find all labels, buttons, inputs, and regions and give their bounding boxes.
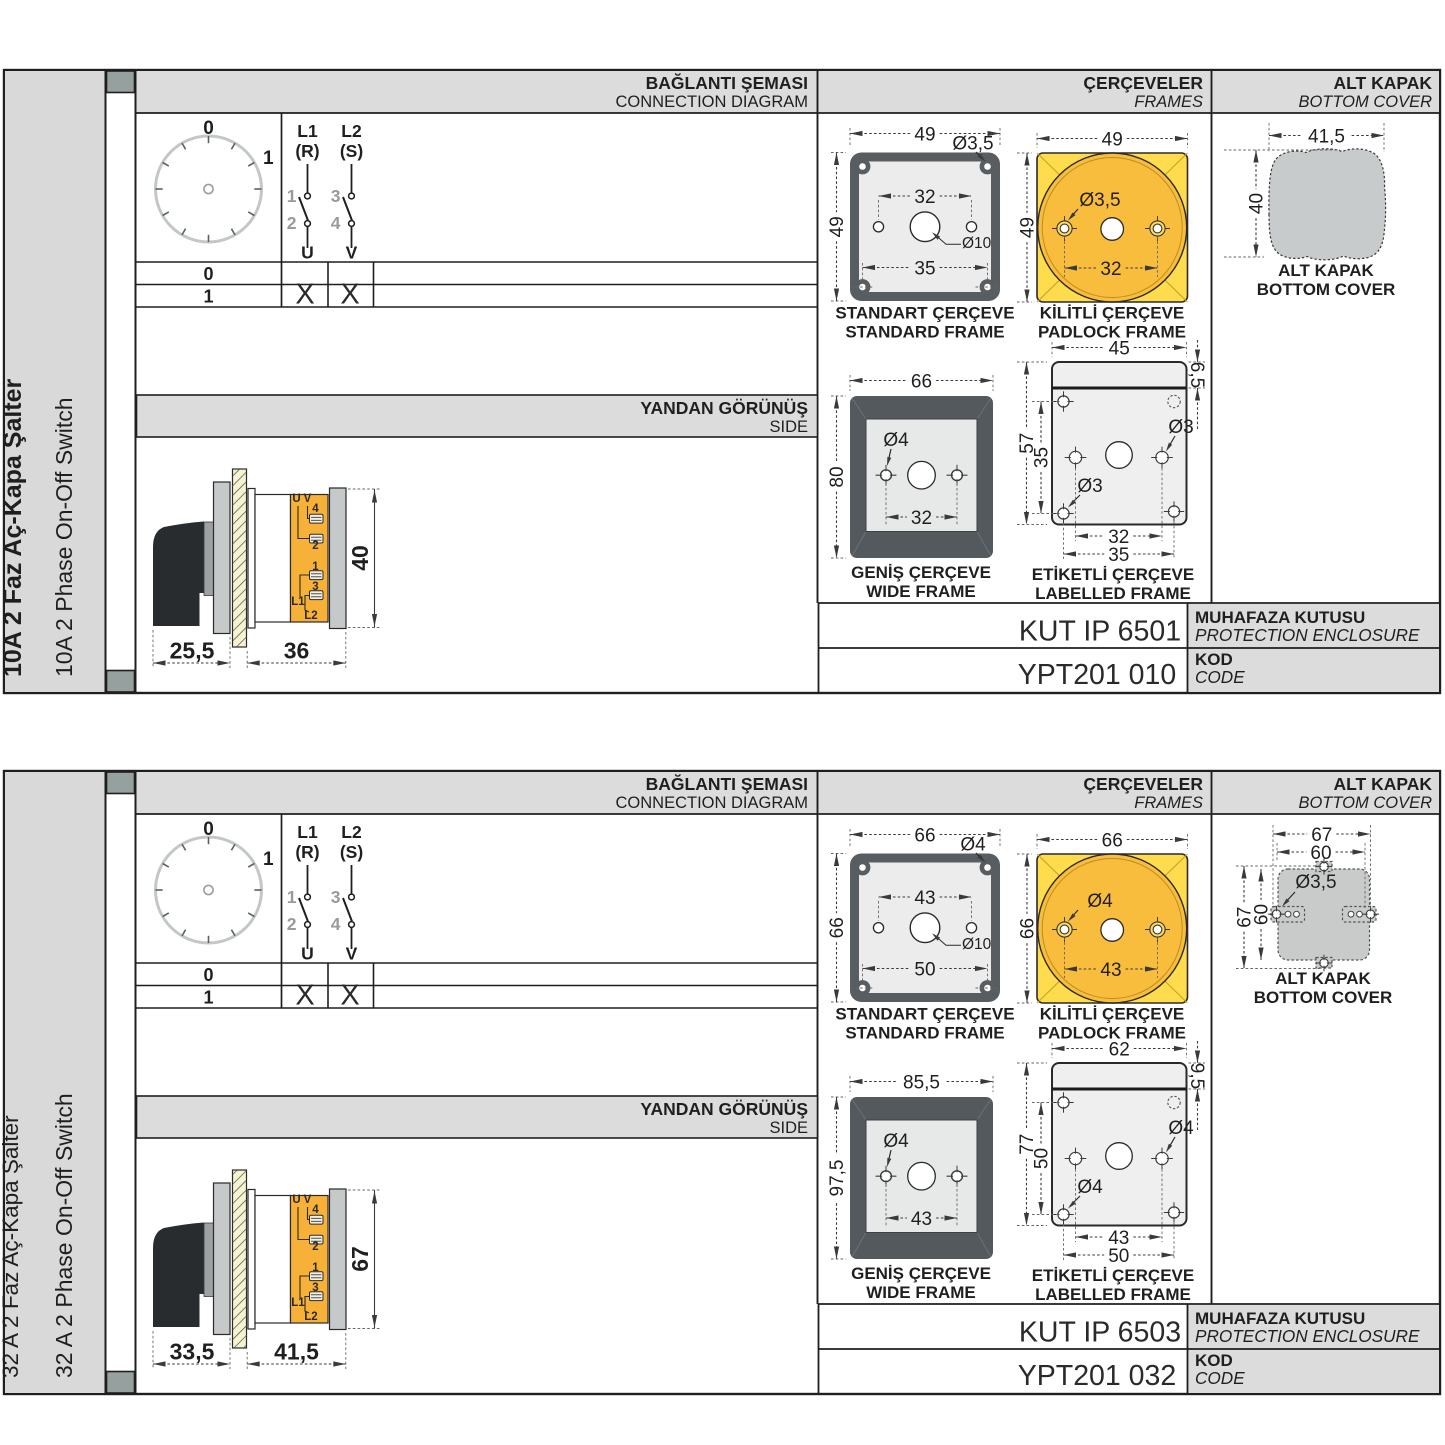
svg-text:YANDAN GÖRÜNÜŞ: YANDAN GÖRÜNÜŞ bbox=[640, 1099, 808, 1119]
svg-text:(R): (R) bbox=[295, 141, 319, 161]
svg-text:CODE: CODE bbox=[1195, 1368, 1245, 1388]
svg-text:YPT201 010: YPT201 010 bbox=[1018, 659, 1176, 691]
svg-text:Ø4: Ø4 bbox=[960, 835, 986, 856]
svg-text:85,5: 85,5 bbox=[903, 1073, 940, 1094]
svg-text:3: 3 bbox=[312, 1282, 318, 1294]
svg-text:YPT201 032: YPT201 032 bbox=[1018, 1360, 1176, 1392]
svg-text:ETİKETLİ ÇERÇEVE: ETİKETLİ ÇERÇEVE bbox=[1032, 565, 1194, 584]
svg-text:L2: L2 bbox=[304, 1311, 317, 1323]
svg-text:CONNECTION DIAGRAM: CONNECTION DIAGRAM bbox=[615, 93, 808, 111]
svg-text:BAĞLANTI ŞEMASI: BAĞLANTI ŞEMASI bbox=[646, 773, 808, 794]
svg-text:66: 66 bbox=[827, 917, 848, 938]
svg-text:Ø3,5: Ø3,5 bbox=[1295, 872, 1336, 893]
svg-text:GENİŞ ÇERÇEVE: GENİŞ ÇERÇEVE bbox=[851, 1264, 991, 1283]
svg-text:2: 2 bbox=[312, 540, 318, 552]
svg-text:KUT IP 6503: KUT IP 6503 bbox=[1019, 1317, 1181, 1349]
svg-text:3: 3 bbox=[312, 581, 318, 593]
svg-text:U: U bbox=[292, 493, 300, 505]
svg-text:(R): (R) bbox=[295, 842, 319, 862]
svg-text:49: 49 bbox=[914, 125, 935, 146]
svg-text:FRAMES: FRAMES bbox=[1134, 794, 1203, 812]
svg-text:KİLİTLİ ÇERÇEVE: KİLİTLİ ÇERÇEVE bbox=[1040, 304, 1185, 323]
svg-text:10A 2 Phase On-Off Switch: 10A 2 Phase On-Off Switch bbox=[51, 397, 77, 677]
svg-text:L1: L1 bbox=[297, 822, 318, 842]
svg-text:1: 1 bbox=[287, 186, 297, 206]
svg-text:40: 40 bbox=[1246, 193, 1267, 214]
svg-text:1: 1 bbox=[203, 988, 213, 1008]
svg-text:PROTECTION ENCLOSURE: PROTECTION ENCLOSURE bbox=[1195, 1326, 1420, 1346]
svg-text:66: 66 bbox=[1017, 918, 1038, 939]
svg-text:0: 0 bbox=[203, 118, 214, 139]
svg-text:49: 49 bbox=[827, 216, 848, 237]
svg-text:49: 49 bbox=[1102, 130, 1123, 151]
svg-text:9,5: 9,5 bbox=[1186, 1063, 1207, 1089]
svg-text:32: 32 bbox=[1100, 259, 1121, 280]
svg-text:(S): (S) bbox=[340, 141, 363, 161]
svg-text:0: 0 bbox=[203, 819, 214, 840]
svg-text:BAĞLANTI ŞEMASI: BAĞLANTI ŞEMASI bbox=[646, 72, 808, 93]
svg-text:CONNECTION DIAGRAM: CONNECTION DIAGRAM bbox=[615, 794, 808, 812]
svg-text:Ø4: Ø4 bbox=[1087, 891, 1113, 912]
svg-text:L2: L2 bbox=[341, 822, 362, 842]
svg-text:YANDAN GÖRÜNÜŞ: YANDAN GÖRÜNÜŞ bbox=[640, 398, 808, 418]
svg-text:ALT KAPAK: ALT KAPAK bbox=[1333, 73, 1432, 93]
svg-text:LABELLED FRAME: LABELLED FRAME bbox=[1035, 584, 1191, 603]
svg-text:6,5: 6,5 bbox=[1186, 362, 1207, 388]
svg-text:1: 1 bbox=[203, 287, 213, 307]
svg-text:66: 66 bbox=[1102, 831, 1123, 852]
svg-text:Ø10: Ø10 bbox=[962, 235, 992, 252]
svg-text:50: 50 bbox=[1108, 1246, 1129, 1267]
svg-text:67: 67 bbox=[347, 1246, 373, 1272]
svg-text:L1: L1 bbox=[297, 121, 318, 141]
svg-text:ALT KAPAK: ALT KAPAK bbox=[1333, 774, 1432, 794]
svg-text:62: 62 bbox=[1109, 1040, 1130, 1061]
svg-text:SIDE: SIDE bbox=[769, 1119, 808, 1137]
svg-text:0: 0 bbox=[203, 264, 213, 284]
svg-text:L2: L2 bbox=[341, 121, 362, 141]
svg-text:4: 4 bbox=[312, 503, 319, 515]
svg-text:43: 43 bbox=[1100, 960, 1121, 981]
svg-text:41,5: 41,5 bbox=[1308, 127, 1345, 148]
svg-text:36: 36 bbox=[284, 638, 310, 664]
svg-text:32 A 2 Phase On-Off Switch: 32 A 2 Phase On-Off Switch bbox=[51, 1093, 77, 1378]
svg-text:49: 49 bbox=[1017, 217, 1038, 238]
svg-text:KUT IP 6501: KUT IP 6501 bbox=[1019, 616, 1181, 648]
svg-text:SIDE: SIDE bbox=[769, 418, 808, 436]
svg-text:2: 2 bbox=[312, 1241, 318, 1253]
svg-text:STANDARD FRAME: STANDARD FRAME bbox=[845, 1024, 1004, 1043]
svg-text:43: 43 bbox=[911, 1209, 932, 1230]
svg-text:U: U bbox=[301, 243, 314, 263]
svg-text:66: 66 bbox=[911, 372, 932, 393]
svg-text:L1: L1 bbox=[291, 1297, 305, 1309]
svg-text:PROTECTION ENCLOSURE: PROTECTION ENCLOSURE bbox=[1195, 625, 1420, 645]
svg-text:ÇERÇEVELER: ÇERÇEVELER bbox=[1083, 73, 1203, 93]
svg-text:U: U bbox=[301, 944, 314, 964]
svg-text:ALT KAPAK: ALT KAPAK bbox=[1275, 969, 1371, 988]
svg-text:LABELLED FRAME: LABELLED FRAME bbox=[1035, 1285, 1191, 1304]
svg-text:1: 1 bbox=[263, 849, 274, 870]
svg-text:L2: L2 bbox=[304, 610, 317, 622]
svg-text:43: 43 bbox=[914, 888, 935, 909]
svg-text:X: X bbox=[295, 279, 314, 311]
svg-text:X: X bbox=[340, 279, 359, 311]
svg-text:60: 60 bbox=[1310, 843, 1331, 864]
svg-text:25,5: 25,5 bbox=[170, 638, 215, 664]
svg-text:1: 1 bbox=[263, 148, 274, 169]
svg-text:Ø3,5: Ø3,5 bbox=[1079, 190, 1120, 211]
svg-text:97,5: 97,5 bbox=[827, 1160, 848, 1197]
svg-text:Ø4: Ø4 bbox=[1168, 1118, 1194, 1139]
svg-text:35: 35 bbox=[914, 259, 935, 280]
svg-text:STANDART ÇERÇEVE: STANDART ÇERÇEVE bbox=[835, 304, 1014, 323]
svg-text:32: 32 bbox=[914, 187, 935, 208]
svg-text:35: 35 bbox=[1108, 545, 1129, 566]
svg-text:40: 40 bbox=[347, 545, 373, 571]
svg-text:1: 1 bbox=[312, 1262, 319, 1274]
svg-text:35: 35 bbox=[1031, 447, 1052, 468]
svg-text:3: 3 bbox=[331, 887, 341, 907]
svg-text:0: 0 bbox=[203, 965, 213, 985]
svg-text:ALT KAPAK: ALT KAPAK bbox=[1278, 261, 1374, 280]
svg-text:32 A 2 Faz Aç-Kapa Şalter: 32 A 2 Faz Aç-Kapa Şalter bbox=[0, 1115, 23, 1378]
svg-text:V: V bbox=[346, 944, 358, 964]
svg-text:WIDE FRAME: WIDE FRAME bbox=[866, 582, 976, 601]
svg-text:4: 4 bbox=[331, 213, 341, 233]
svg-text:Ø3: Ø3 bbox=[1077, 476, 1102, 497]
svg-text:ETİKETLİ ÇERÇEVE: ETİKETLİ ÇERÇEVE bbox=[1032, 1266, 1194, 1285]
svg-text:3: 3 bbox=[331, 186, 341, 206]
svg-text:GENİŞ ÇERÇEVE: GENİŞ ÇERÇEVE bbox=[851, 563, 991, 582]
svg-text:41,5: 41,5 bbox=[274, 1339, 319, 1365]
svg-text:50: 50 bbox=[1031, 1148, 1052, 1169]
svg-text:V: V bbox=[304, 493, 312, 505]
svg-text:V: V bbox=[304, 1194, 312, 1206]
svg-text:Ø4: Ø4 bbox=[883, 430, 909, 451]
svg-text:BOTTOM COVER: BOTTOM COVER bbox=[1254, 988, 1393, 1007]
svg-text:Ø4: Ø4 bbox=[883, 1131, 909, 1152]
svg-text:(S): (S) bbox=[340, 842, 363, 862]
svg-text:1: 1 bbox=[312, 561, 319, 573]
svg-text:ÇERÇEVELER: ÇERÇEVELER bbox=[1083, 774, 1203, 794]
svg-text:CODE: CODE bbox=[1195, 667, 1245, 687]
svg-text:KİLİTLİ ÇERÇEVE: KİLİTLİ ÇERÇEVE bbox=[1040, 1005, 1185, 1024]
svg-text:45: 45 bbox=[1109, 339, 1130, 360]
svg-text:X: X bbox=[340, 980, 359, 1012]
svg-text:80: 80 bbox=[827, 466, 848, 487]
svg-text:Ø4: Ø4 bbox=[1077, 1177, 1103, 1198]
svg-text:2: 2 bbox=[287, 914, 297, 934]
svg-text:Ø3: Ø3 bbox=[1168, 417, 1193, 438]
svg-text:FRAMES: FRAMES bbox=[1134, 93, 1203, 111]
svg-text:STANDART ÇERÇEVE: STANDART ÇERÇEVE bbox=[835, 1005, 1014, 1024]
svg-text:BOTTOM COVER: BOTTOM COVER bbox=[1298, 794, 1432, 812]
svg-text:60: 60 bbox=[1251, 904, 1272, 925]
svg-text:4: 4 bbox=[312, 1204, 319, 1216]
svg-text:X: X bbox=[295, 980, 314, 1012]
svg-text:33,5: 33,5 bbox=[170, 1339, 215, 1365]
svg-text:BOTTOM COVER: BOTTOM COVER bbox=[1298, 93, 1432, 111]
svg-text:V: V bbox=[346, 243, 358, 263]
svg-text:BOTTOM COVER: BOTTOM COVER bbox=[1257, 280, 1396, 299]
svg-text:Ø10: Ø10 bbox=[962, 936, 992, 953]
svg-text:4: 4 bbox=[331, 914, 341, 934]
svg-text:50: 50 bbox=[914, 960, 935, 981]
svg-text:Ø3,5: Ø3,5 bbox=[952, 134, 993, 155]
svg-text:32: 32 bbox=[911, 508, 932, 529]
svg-text:L1: L1 bbox=[291, 596, 305, 608]
svg-text:1: 1 bbox=[287, 887, 297, 907]
svg-text:2: 2 bbox=[287, 213, 297, 233]
svg-text:WIDE FRAME: WIDE FRAME bbox=[866, 1283, 976, 1302]
svg-text:10A 2 Faz Aç-Kapa Şalter: 10A 2 Faz Aç-Kapa Şalter bbox=[0, 378, 27, 677]
svg-text:STANDARD FRAME: STANDARD FRAME bbox=[845, 323, 1004, 342]
svg-text:66: 66 bbox=[914, 826, 935, 847]
svg-text:U: U bbox=[292, 1194, 300, 1206]
